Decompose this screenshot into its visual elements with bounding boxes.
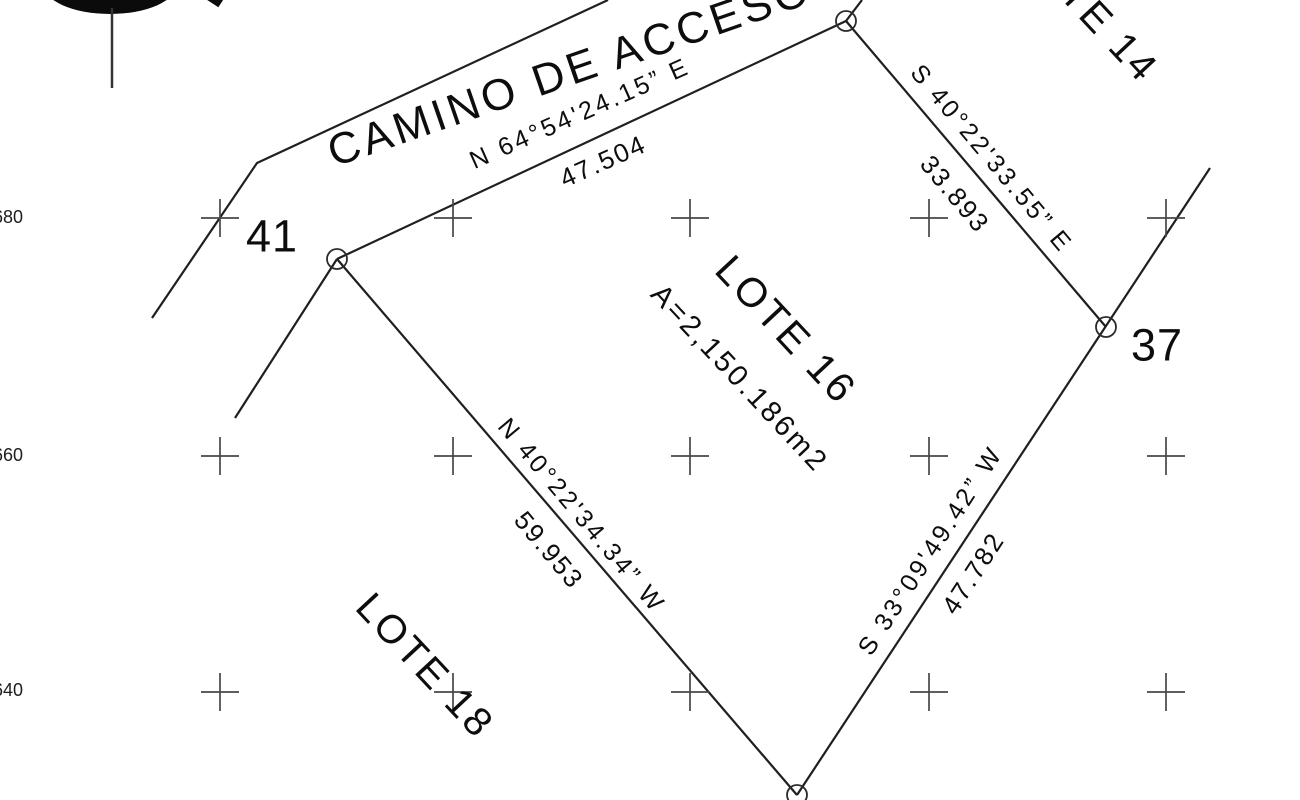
grid-cross: [910, 437, 948, 475]
boundary-east-upper-line: [846, 21, 1106, 327]
grid-label-640: 640: [0, 681, 23, 699]
grid-cross: [910, 673, 948, 711]
grid-cross: [1147, 437, 1185, 475]
grid-cross: [1147, 199, 1185, 237]
survey-plat-map: CAMINO DE ACCESO N 64°54'24.15” E 47.504…: [0, 0, 1300, 800]
grid-cross: [201, 673, 239, 711]
grid-label-660: 660: [0, 446, 23, 464]
point-37-label: 37: [1131, 323, 1183, 368]
grid-cross: [671, 673, 709, 711]
boundary-west-line: [337, 259, 797, 795]
grid-cross: [671, 199, 709, 237]
plat-linework: [0, 0, 1300, 800]
grid-cross: [910, 199, 948, 237]
grid-crosses: [201, 199, 1185, 711]
grid-label-680: 680: [0, 208, 23, 226]
corner-circle-d: [787, 785, 807, 800]
grid-cross: [1147, 673, 1185, 711]
tree-symbol: [43, 0, 223, 88]
grid-cross: [201, 199, 239, 237]
boundary-east-lower-line: [797, 168, 1210, 795]
grid-cross: [201, 437, 239, 475]
point-41-label: 41: [246, 214, 298, 259]
lot41-lot18-divider-line: [235, 259, 337, 418]
grid-cross: [434, 199, 472, 237]
grid-cross: [434, 437, 472, 475]
grid-cross: [671, 437, 709, 475]
